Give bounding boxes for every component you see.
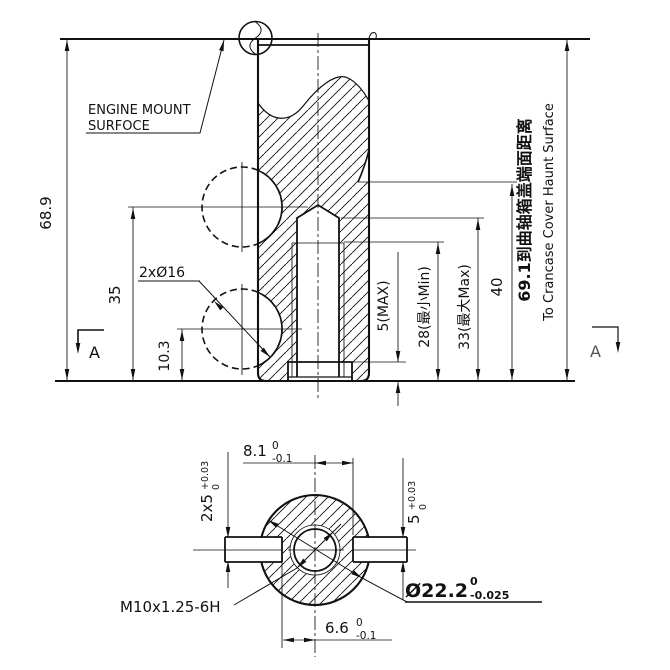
- dim-boss-diameter-upper: 0: [470, 575, 478, 588]
- dim-recess-depth: 5(MAX): [376, 280, 392, 331]
- front-view: ENGINE MOUNT SURFOCE 2xØ16 68.9 35 10.3 …: [37, 22, 618, 407]
- dim-slot-right-value: 5: [405, 514, 423, 524]
- dim-boss-diameter-value: Ø22.2: [405, 580, 468, 602]
- engineering-drawing: ENGINE MOUNT SURFOCE 2xØ16 68.9 35 10.3 …: [0, 0, 670, 670]
- holes-callout-text: 2xØ16: [139, 265, 185, 281]
- dim-slot-top-lower: -0.1: [272, 453, 293, 465]
- mount-label-line1: ENGINE MOUNT: [88, 103, 191, 118]
- section-a-a-view: 8.1 0 -0.1 6.6 0 -0.1 2x5 +0.03 0 5 +0.0…: [120, 440, 542, 657]
- dim-slot-bottom-upper: 0: [356, 617, 363, 629]
- engineering-drawing-page: ENGINE MOUNT SURFOCE 2xØ16 68.9 35 10.3 …: [0, 0, 670, 670]
- dim-slot-right-upper: +0.03: [407, 481, 418, 510]
- dim-slot-top-upper: 0: [272, 440, 279, 452]
- dim-crankcase-note-en: To Crancase Cover Haunt Surface: [542, 103, 557, 322]
- dim-slot-top-value: 8.1: [243, 442, 267, 460]
- dim-boss-diameter-lower: -0.025: [470, 589, 509, 602]
- dim-slot-left-group: 2x5 +0.03 0: [198, 461, 222, 522]
- dim-lower-hole-height: 10.3: [157, 340, 173, 371]
- dim-slot-left-upper: +0.03: [200, 461, 211, 490]
- dim-slot-right-group: 5 +0.03 0: [405, 481, 429, 524]
- dim-slot-right-lower: 0: [418, 504, 429, 510]
- section-letter-right: A: [590, 342, 601, 361]
- section-letter-left: A: [89, 343, 100, 362]
- dim-slot-bottom-value: 6.6: [325, 619, 349, 637]
- dim-slot-bottom-lower: -0.1: [356, 630, 377, 642]
- dim-overall-height: 68.9: [37, 196, 55, 229]
- dim-slot-left-value: 2x5: [198, 494, 216, 522]
- mount-label-line2: SURFOCE: [88, 119, 150, 134]
- dim-drill-depth-max: 33(最大Max): [457, 264, 473, 350]
- dim-thread-depth-min: 28(最小Min): [417, 266, 433, 348]
- dim-crankcase-note-cn: 69.1到曲轴箱盖端面距离: [515, 118, 534, 301]
- dim-upper-hole-height: 35: [106, 285, 124, 304]
- dim-step-height: 40: [488, 277, 506, 296]
- dim-slot-left-lower: 0: [211, 484, 222, 490]
- thread-callout-text: M10x1.25-6H: [120, 598, 221, 616]
